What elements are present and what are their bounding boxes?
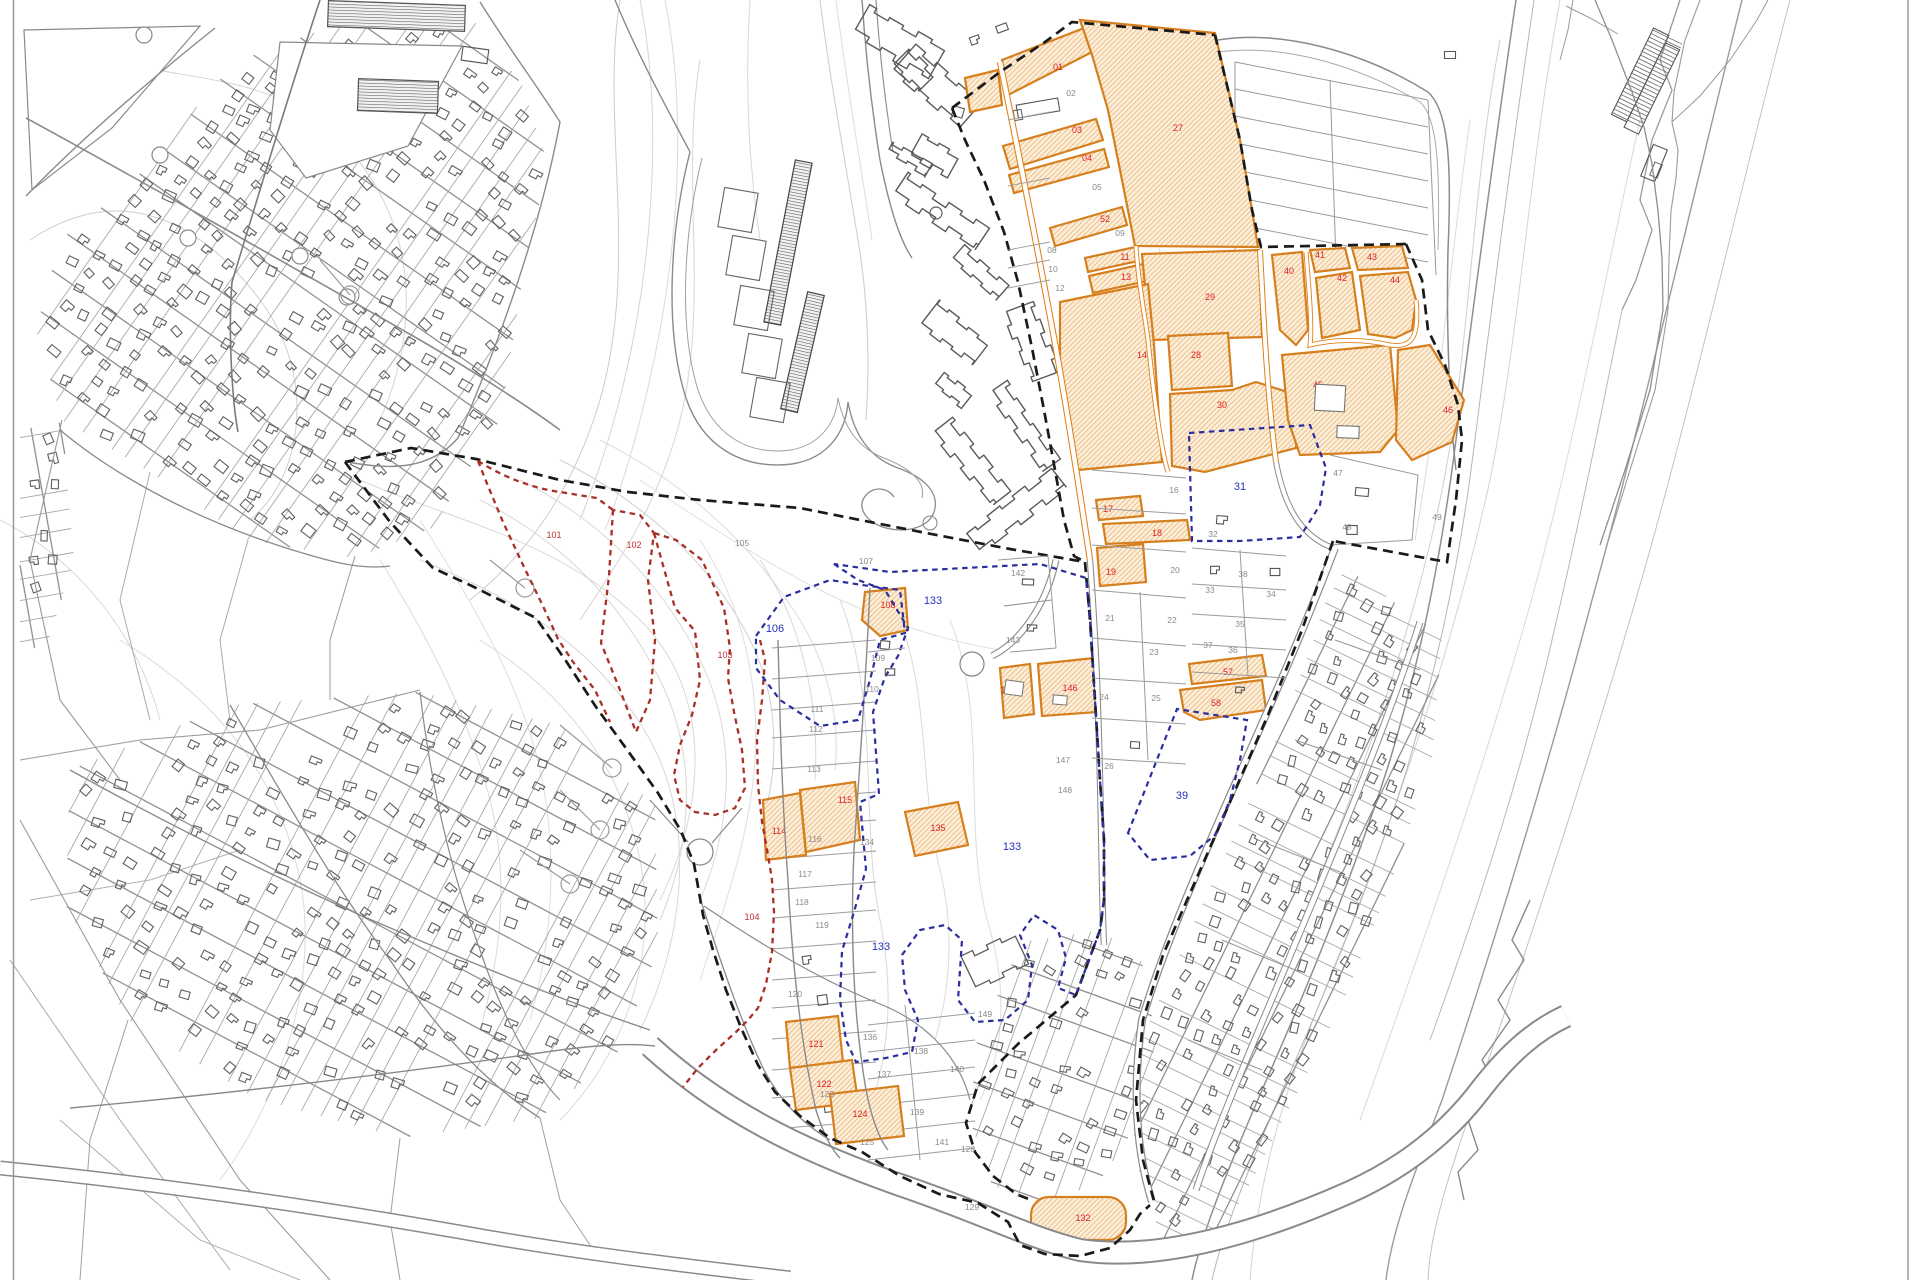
svg-text:01: 01 <box>1053 62 1063 72</box>
svg-text:35: 35 <box>1235 619 1245 629</box>
svg-text:39: 39 <box>1176 790 1188 802</box>
svg-text:42: 42 <box>1337 273 1347 283</box>
svg-text:140: 140 <box>950 1064 964 1074</box>
svg-text:10: 10 <box>1048 264 1058 274</box>
svg-text:149: 149 <box>978 1009 992 1019</box>
svg-text:143: 143 <box>1006 635 1020 645</box>
svg-text:147: 147 <box>1056 755 1070 765</box>
svg-text:58: 58 <box>1211 698 1221 708</box>
svg-text:103: 103 <box>717 650 732 660</box>
svg-text:20: 20 <box>1170 565 1180 575</box>
svg-text:137: 137 <box>877 1069 891 1079</box>
svg-text:14: 14 <box>1137 350 1147 360</box>
svg-text:49: 49 <box>1432 512 1442 522</box>
svg-text:124: 124 <box>852 1109 867 1119</box>
svg-text:128: 128 <box>961 1144 975 1154</box>
svg-text:122: 122 <box>816 1079 831 1089</box>
svg-text:36: 36 <box>1228 645 1238 655</box>
svg-text:08: 08 <box>1047 245 1057 255</box>
svg-text:135: 135 <box>930 823 945 833</box>
svg-text:13: 13 <box>1121 272 1131 282</box>
svg-text:44: 44 <box>1390 275 1400 285</box>
svg-text:48: 48 <box>1342 522 1352 532</box>
svg-text:25: 25 <box>1151 693 1161 703</box>
svg-text:41: 41 <box>1315 250 1325 260</box>
svg-text:03: 03 <box>1072 125 1082 135</box>
svg-text:107: 107 <box>859 556 873 566</box>
svg-text:40: 40 <box>1284 266 1294 276</box>
svg-text:11: 11 <box>1120 252 1129 262</box>
svg-text:38: 38 <box>1238 569 1248 579</box>
svg-text:102: 102 <box>626 540 641 550</box>
svg-text:04: 04 <box>1082 153 1092 163</box>
svg-text:105: 105 <box>735 538 749 548</box>
svg-text:118: 118 <box>795 897 809 907</box>
svg-text:134: 134 <box>860 837 874 847</box>
svg-text:129: 129 <box>965 1202 979 1212</box>
svg-text:139: 139 <box>910 1107 924 1117</box>
svg-text:125: 125 <box>860 1137 874 1147</box>
svg-text:16: 16 <box>1169 485 1179 495</box>
svg-text:46: 46 <box>1443 405 1453 415</box>
svg-text:133: 133 <box>1003 841 1021 853</box>
svg-text:32: 32 <box>1208 529 1218 539</box>
svg-text:119: 119 <box>815 920 829 930</box>
svg-text:115: 115 <box>838 795 852 805</box>
svg-text:138: 138 <box>914 1046 928 1056</box>
svg-text:113: 113 <box>807 764 821 774</box>
svg-text:47: 47 <box>1333 468 1343 478</box>
svg-text:29: 29 <box>1205 292 1215 302</box>
svg-text:05: 05 <box>1092 182 1102 192</box>
svg-text:22: 22 <box>1167 615 1177 625</box>
svg-text:34: 34 <box>1266 589 1276 599</box>
svg-text:146: 146 <box>1062 683 1077 693</box>
svg-text:28: 28 <box>1191 350 1201 360</box>
svg-text:31: 31 <box>1234 481 1246 493</box>
svg-text:116: 116 <box>808 834 822 844</box>
svg-text:123: 123 <box>820 1089 834 1099</box>
svg-text:136: 136 <box>863 1032 877 1042</box>
svg-text:18: 18 <box>1152 528 1162 538</box>
svg-text:30: 30 <box>1217 400 1227 410</box>
svg-text:37: 37 <box>1203 640 1213 650</box>
svg-text:133: 133 <box>924 595 942 607</box>
svg-text:142: 142 <box>1011 568 1025 578</box>
svg-text:101: 101 <box>546 530 561 540</box>
svg-text:52: 52 <box>1100 214 1110 224</box>
svg-text:117: 117 <box>798 869 812 879</box>
svg-text:09: 09 <box>1115 228 1125 238</box>
svg-text:133: 133 <box>872 941 890 953</box>
svg-text:148: 148 <box>1058 785 1072 795</box>
svg-text:104: 104 <box>744 912 759 922</box>
svg-text:26: 26 <box>1104 761 1114 771</box>
svg-text:21: 21 <box>1105 613 1115 623</box>
svg-text:109: 109 <box>871 653 885 663</box>
svg-text:33: 33 <box>1205 585 1215 595</box>
svg-text:120: 120 <box>788 989 802 999</box>
svg-text:57: 57 <box>1223 667 1233 677</box>
svg-text:111: 111 <box>811 704 824 714</box>
svg-text:141: 141 <box>935 1137 949 1147</box>
svg-text:12: 12 <box>1055 283 1065 293</box>
svg-text:132: 132 <box>1075 1213 1090 1223</box>
svg-text:23: 23 <box>1149 647 1159 657</box>
svg-text:24: 24 <box>1099 692 1109 702</box>
svg-text:106: 106 <box>766 623 784 635</box>
svg-text:19: 19 <box>1106 567 1116 577</box>
svg-text:27: 27 <box>1173 123 1183 133</box>
svg-text:112: 112 <box>809 724 823 734</box>
svg-text:110: 110 <box>865 684 879 694</box>
svg-text:121: 121 <box>808 1039 823 1049</box>
svg-text:43: 43 <box>1367 252 1377 262</box>
svg-text:02: 02 <box>1066 88 1076 98</box>
